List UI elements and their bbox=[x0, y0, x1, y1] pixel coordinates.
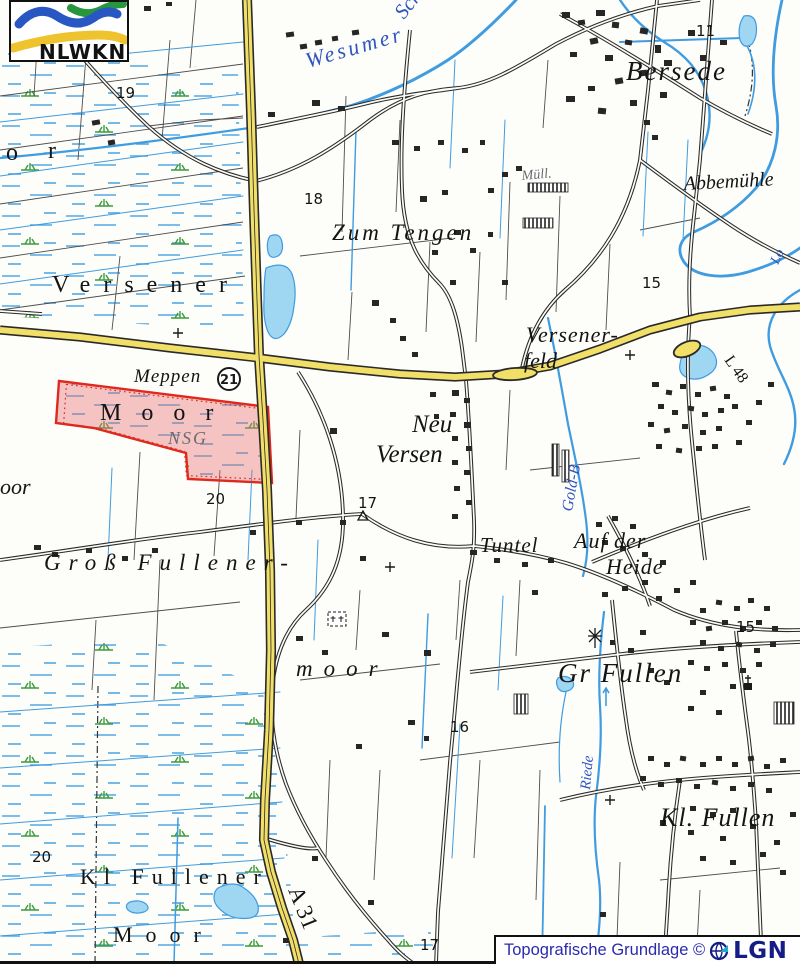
building bbox=[522, 562, 528, 567]
building bbox=[596, 522, 602, 527]
building bbox=[756, 620, 762, 625]
building bbox=[356, 744, 362, 749]
building bbox=[682, 424, 688, 429]
map-label: feld bbox=[524, 348, 558, 373]
building bbox=[452, 390, 459, 396]
building bbox=[680, 384, 686, 389]
building bbox=[494, 558, 500, 563]
building bbox=[566, 96, 575, 102]
building bbox=[648, 422, 654, 427]
building bbox=[700, 640, 706, 645]
map-label: Versen bbox=[376, 441, 443, 468]
map-label: 15 bbox=[736, 618, 755, 636]
building bbox=[736, 440, 742, 445]
building bbox=[462, 148, 468, 153]
building bbox=[674, 588, 680, 593]
map-label: Meppen bbox=[133, 366, 201, 387]
building bbox=[722, 662, 728, 667]
map-label: 11 bbox=[696, 22, 715, 40]
building bbox=[454, 486, 460, 491]
water-body bbox=[126, 901, 148, 913]
building bbox=[720, 40, 727, 45]
building bbox=[716, 756, 722, 761]
building bbox=[424, 650, 431, 656]
building bbox=[730, 684, 736, 689]
building bbox=[268, 112, 275, 117]
building bbox=[450, 280, 456, 285]
building bbox=[390, 318, 396, 323]
building bbox=[372, 300, 379, 306]
building bbox=[660, 92, 667, 98]
building bbox=[452, 514, 458, 519]
map-label: Riede bbox=[578, 755, 597, 792]
building bbox=[760, 852, 766, 857]
building bbox=[730, 860, 736, 865]
building bbox=[676, 448, 683, 454]
building bbox=[724, 394, 730, 399]
building bbox=[562, 12, 570, 18]
building bbox=[470, 550, 477, 555]
map-label: NSG bbox=[167, 428, 208, 448]
building bbox=[718, 408, 724, 413]
building bbox=[688, 30, 695, 36]
building bbox=[640, 630, 646, 635]
map-label: Versener bbox=[52, 272, 240, 298]
building bbox=[600, 912, 606, 917]
map-label: Tuntel bbox=[480, 533, 539, 557]
map-label: Kl. Fullen bbox=[659, 803, 775, 832]
building bbox=[452, 460, 458, 465]
building bbox=[438, 140, 444, 145]
building bbox=[532, 590, 538, 595]
building bbox=[718, 646, 724, 651]
attribution-text: Topografische Grundlage © bbox=[504, 941, 705, 960]
building bbox=[340, 520, 346, 525]
building bbox=[756, 662, 762, 667]
building bbox=[770, 642, 776, 647]
building bbox=[464, 398, 470, 403]
building bbox=[666, 390, 673, 396]
building bbox=[690, 580, 696, 585]
building bbox=[622, 586, 628, 591]
building bbox=[790, 812, 796, 817]
building bbox=[656, 444, 662, 449]
building bbox=[283, 938, 289, 943]
building bbox=[716, 426, 722, 431]
building bbox=[502, 172, 508, 177]
map-label: 16 bbox=[450, 718, 469, 736]
building bbox=[772, 626, 778, 631]
building bbox=[412, 352, 418, 357]
building bbox=[734, 606, 740, 611]
map-label: 20 bbox=[206, 490, 225, 508]
building bbox=[464, 422, 471, 428]
building bbox=[658, 404, 664, 409]
building bbox=[144, 6, 151, 11]
building bbox=[774, 840, 780, 845]
building bbox=[716, 710, 722, 715]
map-label: Versener- bbox=[526, 322, 619, 347]
building bbox=[628, 648, 634, 653]
map-label: Groß Fullener- bbox=[44, 550, 296, 575]
building bbox=[368, 900, 374, 905]
map-label: Auf der bbox=[572, 528, 646, 553]
building bbox=[740, 668, 746, 673]
building-hatched bbox=[523, 218, 553, 228]
map-label: 15 bbox=[642, 274, 661, 292]
building bbox=[548, 558, 554, 563]
building bbox=[736, 642, 743, 648]
building bbox=[400, 336, 406, 341]
map-root: 2119orWesumerSchBersede11Müll.AbbemühleL… bbox=[0, 0, 800, 964]
map-label: r bbox=[48, 138, 56, 164]
building bbox=[610, 640, 615, 645]
building bbox=[466, 500, 472, 505]
building bbox=[696, 446, 702, 451]
building bbox=[748, 598, 754, 603]
nlwkn-logo-box: NLWKN bbox=[9, 0, 129, 62]
map-label: 20 bbox=[32, 848, 51, 866]
building bbox=[612, 22, 620, 29]
lgn-wordmark: LGN bbox=[733, 938, 787, 964]
map-label: oor bbox=[0, 474, 31, 499]
building bbox=[570, 52, 577, 57]
building bbox=[408, 720, 415, 725]
building bbox=[780, 758, 786, 763]
building bbox=[695, 392, 701, 397]
building bbox=[652, 135, 658, 140]
building bbox=[710, 386, 717, 392]
building bbox=[640, 776, 646, 781]
building bbox=[602, 592, 608, 597]
building bbox=[664, 428, 671, 434]
building bbox=[466, 446, 472, 451]
building bbox=[700, 762, 706, 767]
map-label: o bbox=[6, 140, 18, 166]
building-hatched bbox=[552, 444, 559, 476]
map-label: Moor bbox=[100, 400, 233, 426]
building bbox=[694, 784, 700, 789]
water-body bbox=[739, 16, 756, 47]
building bbox=[748, 782, 754, 787]
building bbox=[330, 428, 337, 434]
building bbox=[488, 188, 494, 193]
building bbox=[652, 382, 659, 387]
building bbox=[424, 736, 429, 741]
building bbox=[625, 40, 633, 46]
map-label: Gr Fullen bbox=[558, 658, 683, 688]
map-canvas: 2119orWesumerSchBersede11Müll.AbbemühleL… bbox=[0, 0, 800, 964]
building bbox=[716, 600, 723, 606]
building bbox=[312, 856, 318, 861]
building bbox=[754, 648, 760, 653]
building bbox=[780, 870, 786, 875]
building bbox=[700, 690, 706, 695]
building bbox=[442, 190, 448, 195]
building bbox=[382, 632, 389, 637]
building bbox=[430, 392, 436, 397]
building-hatched bbox=[528, 183, 568, 192]
building-hatched bbox=[514, 694, 528, 714]
building bbox=[578, 20, 586, 26]
building bbox=[296, 520, 302, 525]
building bbox=[392, 140, 399, 145]
attribution-box: Topografische Grundlage © LGN bbox=[494, 935, 800, 964]
building bbox=[688, 706, 694, 711]
building bbox=[480, 140, 485, 145]
building bbox=[700, 608, 706, 613]
building bbox=[702, 412, 708, 417]
building bbox=[700, 430, 706, 435]
blue-wave-icon bbox=[19, 11, 117, 24]
map-label: Kl Fullener bbox=[80, 864, 269, 889]
map-label: Moor bbox=[113, 922, 214, 947]
building bbox=[644, 120, 650, 125]
building bbox=[676, 778, 682, 783]
building bbox=[746, 420, 752, 425]
map-label: Müll. bbox=[520, 166, 552, 184]
building bbox=[688, 660, 694, 665]
cemetery-icon bbox=[328, 612, 346, 626]
building bbox=[706, 626, 713, 632]
building bbox=[470, 248, 476, 253]
building bbox=[322, 650, 328, 655]
map-label: Neu bbox=[411, 411, 452, 438]
building bbox=[648, 756, 654, 761]
building bbox=[756, 400, 762, 405]
map-label: Bersede bbox=[626, 56, 727, 86]
building bbox=[312, 100, 320, 106]
building bbox=[655, 45, 661, 53]
building bbox=[656, 596, 662, 601]
building bbox=[712, 780, 719, 786]
map-label: moor bbox=[296, 656, 389, 681]
building bbox=[690, 620, 696, 625]
building bbox=[700, 856, 706, 861]
building bbox=[452, 436, 458, 441]
map-label: Zum Tengen bbox=[332, 220, 474, 245]
map-label: 17 bbox=[420, 936, 439, 954]
building bbox=[672, 410, 678, 415]
building bbox=[502, 280, 508, 285]
building bbox=[588, 86, 595, 91]
building bbox=[250, 530, 256, 535]
building bbox=[680, 756, 687, 762]
building bbox=[720, 836, 726, 841]
building bbox=[166, 2, 172, 6]
building bbox=[688, 406, 695, 412]
building bbox=[612, 516, 618, 521]
building bbox=[768, 382, 774, 387]
map-label: Heide bbox=[605, 554, 664, 579]
building bbox=[414, 146, 420, 151]
building bbox=[732, 404, 738, 409]
building bbox=[630, 100, 637, 106]
map-label: 18 bbox=[304, 190, 323, 208]
building bbox=[658, 782, 664, 787]
map-label: 19 bbox=[116, 84, 135, 102]
building bbox=[748, 756, 755, 762]
building bbox=[360, 556, 366, 561]
building bbox=[766, 788, 772, 793]
building bbox=[732, 762, 738, 767]
building bbox=[432, 250, 438, 255]
building bbox=[34, 545, 41, 550]
building bbox=[704, 666, 710, 671]
building bbox=[605, 55, 613, 61]
building bbox=[764, 764, 770, 769]
church-icon bbox=[744, 683, 752, 690]
building bbox=[598, 108, 607, 115]
building bbox=[642, 580, 648, 585]
building bbox=[488, 232, 493, 237]
building bbox=[664, 762, 670, 767]
water-body bbox=[267, 235, 282, 257]
building bbox=[596, 10, 605, 16]
building bbox=[712, 444, 718, 449]
route-shield-number: 21 bbox=[220, 373, 238, 388]
building bbox=[338, 106, 345, 111]
building bbox=[296, 636, 303, 641]
building bbox=[420, 196, 427, 202]
building bbox=[464, 470, 470, 475]
nlwkn-wordmark: NLWKN bbox=[39, 40, 126, 64]
lgn-globe-icon bbox=[709, 941, 729, 961]
building bbox=[722, 620, 728, 625]
map-label: 17 bbox=[358, 494, 377, 512]
building bbox=[764, 606, 770, 611]
building bbox=[730, 786, 736, 791]
building-hatched bbox=[774, 702, 794, 724]
